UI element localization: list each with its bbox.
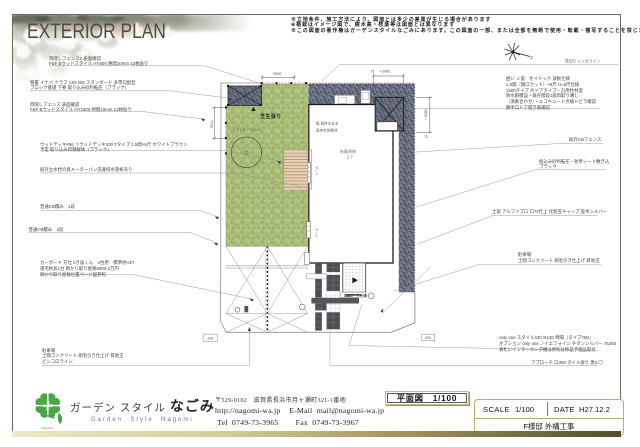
- svg-text:シマトネリコ H2.5: シマトネリコ H2.5: [233, 127, 260, 132]
- svg-text:サッシ: サッシ: [315, 166, 320, 176]
- svg-text:3000: 3000: [210, 120, 214, 128]
- svg-text:芝生張り: 芝生張り: [260, 113, 282, 120]
- svg-text:-100: -100: [206, 336, 213, 340]
- svg-text:73: 73: [371, 70, 375, 74]
- svg-text:73: 73: [424, 135, 428, 139]
- svg-text:〜1905: 〜1905: [379, 70, 390, 74]
- svg-text:-200: -200: [424, 336, 431, 340]
- svg-text:既存本体解体: 既存本体解体: [316, 128, 338, 133]
- svg-text:既 既存のまま: 既 既存のまま: [316, 121, 339, 126]
- svg-text:z: z: [530, 55, 534, 60]
- svg-text:〜2280: 〜2280: [424, 109, 428, 120]
- svg-text:２Ｆ: ２Ｆ: [346, 155, 354, 160]
- svg-text:nagomi: nagomi: [41, 426, 54, 430]
- svg-text:2000: 2000: [273, 72, 281, 76]
- svg-text:新築建物: 新築建物: [340, 148, 356, 154]
- svg-text:サッシ: サッシ: [315, 228, 320, 238]
- svg-text:見切り レンガライン: 見切り レンガライン: [565, 59, 600, 64]
